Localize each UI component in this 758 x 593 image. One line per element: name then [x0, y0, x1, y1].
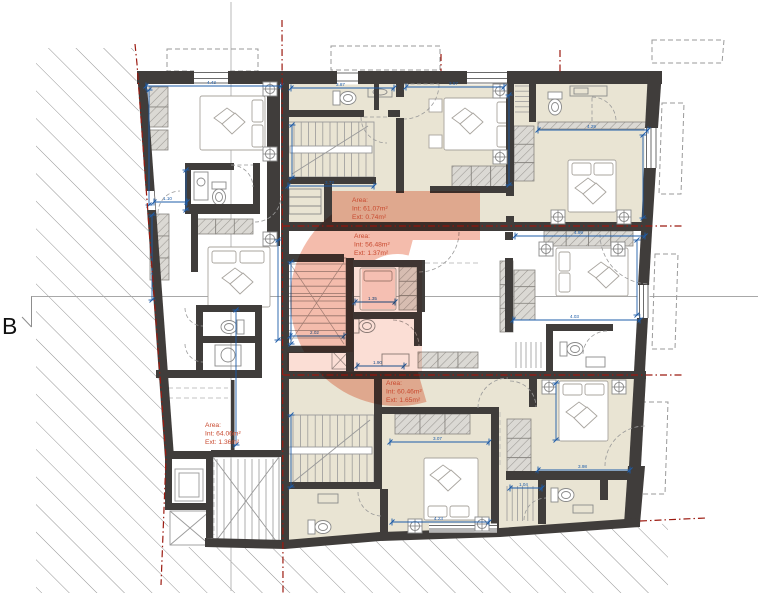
svg-text:Area:: Area: — [386, 380, 402, 387]
svg-text:4.23: 4.23 — [434, 516, 443, 521]
svg-text:Ext: 1.65m²: Ext: 1.65m² — [386, 397, 421, 404]
svg-text:Area:: Area: — [352, 197, 368, 204]
svg-text:B: B — [2, 313, 17, 339]
svg-text:3.98: 3.98 — [578, 464, 587, 469]
svg-text:1.04: 1.04 — [519, 482, 528, 487]
svg-text:4.43: 4.43 — [207, 80, 216, 85]
svg-text:Area:: Area: — [205, 422, 221, 429]
svg-text:1.10: 1.10 — [163, 196, 172, 201]
svg-text:Int: 56.48m²: Int: 56.48m² — [354, 241, 390, 248]
svg-text:Int: 60.46m²: Int: 60.46m² — [386, 388, 422, 395]
svg-text:Ext: 1.36m²: Ext: 1.36m² — [205, 439, 240, 446]
svg-text:3.07: 3.07 — [433, 436, 442, 441]
svg-text:4.03: 4.03 — [570, 314, 579, 319]
svg-text:Area:: Area: — [354, 233, 370, 240]
svg-text:4.29: 4.29 — [587, 124, 596, 129]
svg-text:Int: 64.06m²: Int: 64.06m² — [205, 430, 241, 437]
svg-text:Ext: 1.37m²: Ext: 1.37m² — [354, 250, 389, 257]
svg-text:4.99: 4.99 — [574, 230, 583, 235]
svg-text:3.87: 3.87 — [336, 82, 345, 87]
svg-text:Ext: 0.74m²: Ext: 0.74m² — [352, 214, 387, 221]
svg-text:3.57: 3.57 — [449, 81, 458, 86]
svg-text:3.73: 3.73 — [325, 180, 334, 185]
svg-text:Int: 61.07m²: Int: 61.07m² — [352, 205, 388, 212]
